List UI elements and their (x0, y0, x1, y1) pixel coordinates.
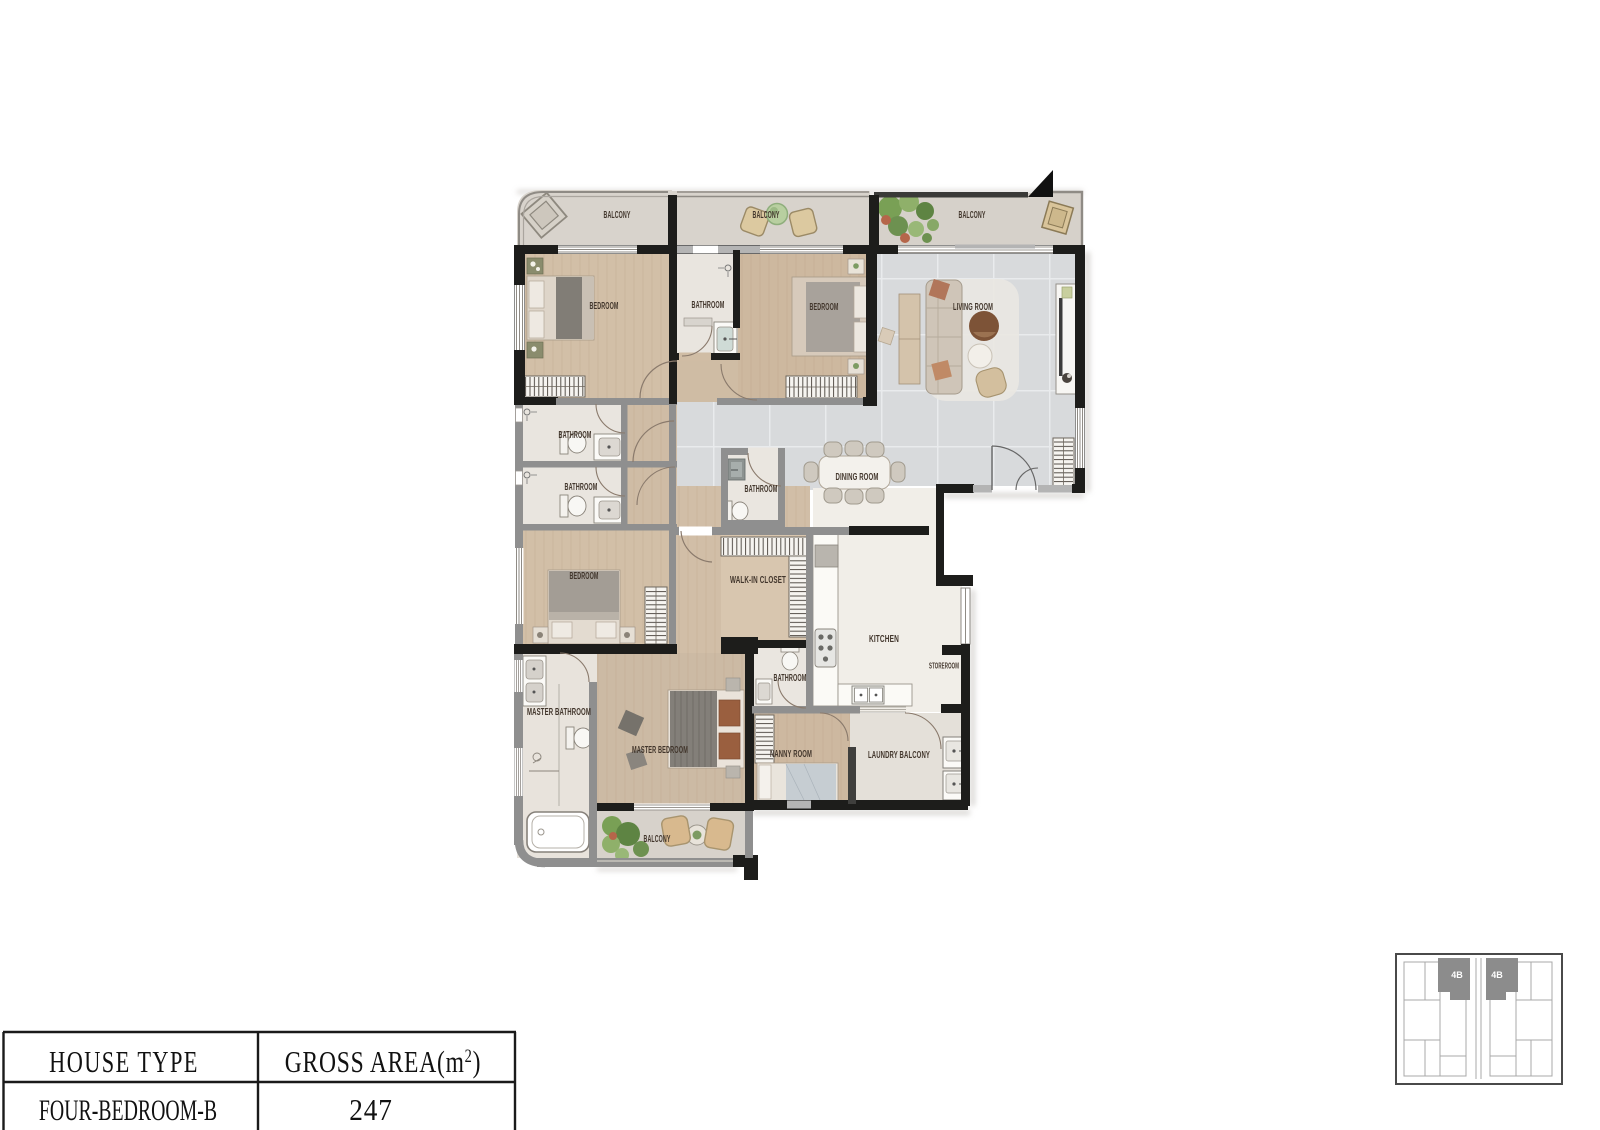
svg-text:BALCONY: BALCONY (959, 209, 986, 221)
svg-text:BALCONY: BALCONY (604, 209, 631, 221)
svg-text:MASTER BEDROOM: MASTER BEDROOM (632, 745, 688, 756)
svg-text:LAUNDRY BALCONY: LAUNDRY BALCONY (868, 750, 930, 761)
svg-text:DINING ROOM: DINING ROOM (836, 471, 879, 483)
svg-text:HOUSE TYPE: HOUSE TYPE (49, 1044, 199, 1078)
svg-text:LIVING ROOM: LIVING ROOM (953, 301, 993, 313)
svg-text:247: 247 (349, 1093, 393, 1127)
svg-text:BATHROOM: BATHROOM (745, 484, 778, 495)
svg-text:NANNY ROOM: NANNY ROOM (770, 749, 812, 760)
svg-text:BALCONY: BALCONY (753, 209, 780, 221)
svg-text:BEDROOM: BEDROOM (590, 300, 619, 312)
svg-text:BATHROOM: BATHROOM (692, 300, 725, 311)
svg-text:KITCHEN: KITCHEN (869, 633, 899, 645)
svg-text:GROSS AREA(m2): GROSS AREA(m2) (285, 1044, 481, 1079)
svg-text:WALK-IN CLOSET: WALK-IN CLOSET (730, 575, 786, 586)
svg-text:BEDROOM: BEDROOM (570, 570, 599, 582)
svg-text:FOUR-BEDROOM-B: FOUR-BEDROOM-B (39, 1094, 217, 1127)
svg-text:MASTER BATHROOM: MASTER BATHROOM (527, 707, 591, 718)
svg-text:BATHROOM: BATHROOM (774, 673, 807, 684)
svg-text:BATHROOM: BATHROOM (565, 482, 598, 493)
svg-text:BALCONY: BALCONY (644, 834, 671, 845)
svg-text:BATHROOM: BATHROOM (559, 430, 592, 441)
svg-text:4B: 4B (1491, 970, 1503, 980)
svg-text:4B: 4B (1451, 970, 1463, 980)
svg-text:BEDROOM: BEDROOM (810, 301, 839, 313)
svg-text:STOREROOM: STOREROOM (929, 662, 959, 671)
